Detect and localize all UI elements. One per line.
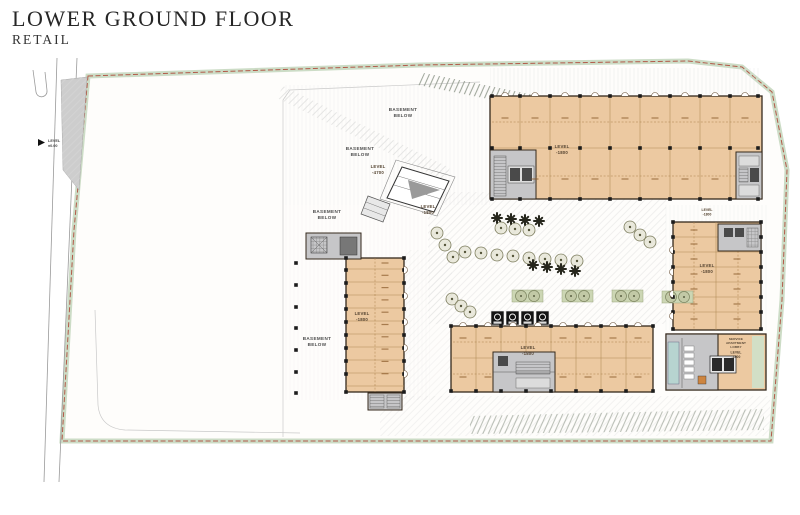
unit-tag-mark xyxy=(585,376,592,377)
column-marker xyxy=(344,268,348,272)
column-marker xyxy=(638,94,642,98)
column-marker xyxy=(294,305,298,309)
label-east-retail-level: -1800 xyxy=(701,269,713,274)
service-orange-room xyxy=(698,376,706,384)
unit-tag-mark xyxy=(712,117,719,118)
column-marker xyxy=(344,346,348,350)
stall xyxy=(684,374,694,379)
column-marker xyxy=(624,324,628,328)
column-marker xyxy=(344,390,348,394)
unit-tag-mark xyxy=(460,376,467,377)
column-marker xyxy=(490,197,494,201)
entry-arc xyxy=(712,93,719,96)
unit-tag-mark xyxy=(382,312,389,313)
column-marker xyxy=(474,324,478,328)
column-marker xyxy=(490,146,494,150)
column-marker xyxy=(518,197,522,201)
label-basement-below: BELOW xyxy=(308,342,327,347)
column-marker xyxy=(549,389,553,393)
column-marker xyxy=(728,197,732,201)
unit-tag-mark xyxy=(592,117,599,118)
column-marker xyxy=(294,391,298,395)
label-basement-below: BASEMENT xyxy=(303,336,332,341)
service-green-strip xyxy=(752,336,764,388)
unit-tag-mark xyxy=(734,303,741,304)
column-marker xyxy=(668,197,672,201)
north-core-east-stair xyxy=(739,168,748,182)
column-marker xyxy=(624,389,628,393)
tree-icon xyxy=(620,295,622,297)
column-marker xyxy=(668,146,672,150)
tree-icon xyxy=(444,244,446,246)
road-edge-left xyxy=(44,58,57,482)
unit-tag-mark xyxy=(382,299,389,300)
column-marker xyxy=(651,389,655,393)
label-basement-below: BELOW xyxy=(351,152,370,157)
column-marker xyxy=(671,220,675,224)
east-core-stair xyxy=(747,228,758,247)
column-marker xyxy=(499,324,503,328)
column-marker xyxy=(599,324,603,328)
shrub-icon xyxy=(528,260,538,270)
lift-icon xyxy=(524,322,532,324)
west-core-room xyxy=(340,237,357,255)
column-marker xyxy=(574,324,578,328)
label-service-lobby: LOBBY xyxy=(730,345,742,349)
unit-tag-mark xyxy=(592,178,599,179)
column-marker xyxy=(578,146,582,150)
unit-tag-mark xyxy=(691,288,698,289)
column-marker xyxy=(698,94,702,98)
column-marker xyxy=(756,146,760,150)
column-marker xyxy=(759,235,763,239)
tree-icon xyxy=(544,258,546,260)
shrub-icon xyxy=(534,216,544,226)
page-subtitle: RETAIL xyxy=(12,32,294,48)
column-marker xyxy=(671,280,675,284)
unit-tag-mark xyxy=(691,258,698,259)
stall xyxy=(684,360,694,365)
unit-tag-mark xyxy=(734,273,741,274)
label-level-4700: LEVEL xyxy=(371,164,386,169)
west-stair-run-2 xyxy=(387,395,400,408)
entry-arc xyxy=(560,323,567,327)
unit-tag-mark xyxy=(382,324,389,325)
column-marker xyxy=(449,324,453,328)
label-east-entry-level: LEVEL xyxy=(702,208,713,212)
tree-icon xyxy=(639,234,641,236)
column-marker xyxy=(759,280,763,284)
column-marker xyxy=(344,281,348,285)
tree-icon xyxy=(528,257,530,259)
unit-tag-mark xyxy=(635,337,642,338)
column-marker xyxy=(599,389,603,393)
tree-icon xyxy=(570,295,572,297)
column-marker xyxy=(518,94,522,98)
unit-tag-mark xyxy=(742,117,749,118)
entry-arc xyxy=(670,291,674,298)
service-stalls xyxy=(684,346,694,379)
unit-tag-mark xyxy=(382,361,389,362)
unit-tag-mark xyxy=(691,303,698,304)
unit-tag-mark xyxy=(382,349,389,350)
unit-tag-mark xyxy=(610,376,617,377)
service-lift-2 xyxy=(724,358,734,371)
label-basement-below: BASEMENT xyxy=(313,209,342,214)
label-basement-below: BASEMENT xyxy=(346,146,375,151)
north-core-east-room xyxy=(739,156,759,166)
unit-tag-mark xyxy=(652,178,659,179)
service-lift-1 xyxy=(712,358,722,371)
column-marker xyxy=(759,265,763,269)
shrub-icon xyxy=(506,214,516,224)
unit-tag-mark xyxy=(682,117,689,118)
column-marker xyxy=(490,94,494,98)
tree-icon xyxy=(683,296,685,298)
label-east-retail-level: LEVEL xyxy=(700,263,715,268)
entry-arc xyxy=(670,247,674,254)
column-marker xyxy=(344,320,348,324)
tree-icon xyxy=(460,305,462,307)
unit-tag-mark xyxy=(635,376,642,377)
tree-icon xyxy=(633,295,635,297)
column-marker xyxy=(759,310,763,314)
column-marker xyxy=(402,359,406,363)
south-core-room xyxy=(516,378,550,388)
tree-icon xyxy=(514,228,516,230)
unit-tag-mark xyxy=(485,337,492,338)
column-marker xyxy=(499,389,503,393)
shrub-icon xyxy=(570,266,580,276)
column-marker xyxy=(474,389,478,393)
unit-tag-mark xyxy=(585,337,592,338)
column-marker xyxy=(294,348,298,352)
column-marker xyxy=(578,197,582,201)
column-marker xyxy=(402,333,406,337)
lift-icon xyxy=(494,322,502,324)
stall xyxy=(684,353,694,358)
unit-tag-mark xyxy=(560,376,567,377)
label-road-level: LEVEL xyxy=(48,139,61,143)
stall xyxy=(684,367,694,372)
column-marker xyxy=(671,327,675,331)
entry-arc xyxy=(532,93,539,96)
label-north-retail-level: LEVEL xyxy=(555,144,570,149)
tree-icon xyxy=(583,295,585,297)
label-basement-below: BELOW xyxy=(318,215,337,220)
tree-icon xyxy=(464,251,466,253)
column-marker xyxy=(402,390,406,394)
unit-tag-mark xyxy=(382,275,389,276)
column-marker xyxy=(608,197,612,201)
unit-tag-mark xyxy=(622,178,629,179)
unit-tag-mark xyxy=(460,337,467,338)
north-core-west-stair xyxy=(494,156,506,196)
service-water-room xyxy=(668,342,679,384)
building-east-retail xyxy=(673,222,761,330)
tree-icon xyxy=(528,229,530,231)
label-level-4700: -4700 xyxy=(372,170,384,175)
unit-tag-mark xyxy=(712,178,719,179)
label-basement-below: BASEMENT xyxy=(389,107,418,112)
column-marker xyxy=(402,256,406,260)
column-marker xyxy=(728,146,732,150)
label-south-retail-level: LEVEL xyxy=(521,345,536,350)
label-north-retail-level: -1800 xyxy=(556,150,568,155)
tree-icon xyxy=(629,226,631,228)
parking-hatch-mid xyxy=(404,250,452,400)
unit-tag-mark xyxy=(734,318,741,319)
unit-tag-mark xyxy=(622,117,629,118)
label-service-level: LEVEL xyxy=(731,351,742,355)
tree-icon xyxy=(560,259,562,261)
column-marker xyxy=(344,294,348,298)
column-marker xyxy=(608,146,612,150)
column-marker xyxy=(759,295,763,299)
column-marker xyxy=(344,256,348,260)
column-marker xyxy=(671,235,675,239)
column-marker xyxy=(759,327,763,331)
column-marker xyxy=(728,94,732,98)
unit-tag-mark xyxy=(502,117,509,118)
west-stair-run-1 xyxy=(370,395,384,408)
road-turnout-curve xyxy=(33,70,47,97)
entry-arc xyxy=(635,323,642,327)
column-marker xyxy=(638,197,642,201)
unit-tag-mark xyxy=(382,336,389,337)
unit-tag-mark xyxy=(562,178,569,179)
north-core-east-lift xyxy=(750,168,759,182)
label-ramp-level: -1800 xyxy=(422,210,434,215)
tree-icon xyxy=(500,227,502,229)
unit-tag-mark xyxy=(691,243,698,244)
building-north-retail xyxy=(490,96,762,199)
label-east-entry-level: -1800 xyxy=(703,213,712,217)
column-marker xyxy=(578,94,582,98)
unit-tag-mark xyxy=(382,262,389,263)
unit-tag-mark xyxy=(560,337,567,338)
south-core-lift xyxy=(498,356,508,366)
north-core-east-room2 xyxy=(739,185,759,196)
column-marker xyxy=(574,389,578,393)
tree-icon xyxy=(576,260,578,262)
tree-icon xyxy=(451,298,453,300)
entry-arc xyxy=(404,267,408,274)
building-service-block xyxy=(666,334,766,390)
east-core-lift-1 xyxy=(724,228,733,237)
entry-arc xyxy=(404,345,408,352)
column-marker xyxy=(668,94,672,98)
label-west-retail-level: LEVEL xyxy=(355,311,370,316)
column-marker xyxy=(548,94,552,98)
column-marker xyxy=(449,389,453,393)
tree-icon xyxy=(469,311,471,313)
column-marker xyxy=(402,307,406,311)
column-marker xyxy=(344,359,348,363)
label-west-retail-level: -1800 xyxy=(356,317,368,322)
column-marker xyxy=(756,94,760,98)
unit-tag-mark xyxy=(610,337,617,338)
north-core-west-lift-1 xyxy=(510,168,520,181)
page-title: LOWER GROUND FLOOR xyxy=(12,6,294,32)
entry-arc xyxy=(682,93,689,96)
entry-arc xyxy=(535,323,542,327)
unit-tag-mark xyxy=(652,117,659,118)
unit-tag-mark xyxy=(382,287,389,288)
site-plan-drawing: BASEMENT BELOW BASEMENT BELOW BASEMENT B… xyxy=(0,0,800,515)
stall xyxy=(684,346,694,351)
building-south-retail xyxy=(451,326,653,392)
label-south-retail-level: -1800 xyxy=(522,351,534,356)
column-marker xyxy=(651,324,655,328)
column-marker xyxy=(402,281,406,285)
column-marker xyxy=(759,250,763,254)
entry-arc xyxy=(742,93,749,96)
label-service-level: -1800 xyxy=(732,355,741,359)
column-marker xyxy=(344,372,348,376)
unit-tag-mark xyxy=(734,288,741,289)
unit-tag-mark xyxy=(691,273,698,274)
column-marker xyxy=(548,146,552,150)
column-marker xyxy=(608,94,612,98)
label-basement-below: BELOW xyxy=(394,113,413,118)
unit-tag-mark xyxy=(682,178,689,179)
column-marker xyxy=(756,197,760,201)
column-marker xyxy=(638,146,642,150)
entry-arc xyxy=(670,269,674,276)
parking-hatch-top xyxy=(285,85,490,205)
tree-icon xyxy=(452,256,454,258)
unit-tag-mark xyxy=(382,373,389,374)
column-marker xyxy=(524,324,528,328)
unit-tag-mark xyxy=(532,178,539,179)
label-road-level: ±0.00 xyxy=(48,144,57,148)
column-marker xyxy=(344,307,348,311)
column-marker xyxy=(698,197,702,201)
west-retail-outline xyxy=(346,258,404,392)
column-marker xyxy=(294,261,298,265)
road-level-arrow-icon xyxy=(38,139,45,146)
column-marker xyxy=(518,146,522,150)
title-block: LOWER GROUND FLOOR RETAIL xyxy=(12,6,294,48)
entry-arc xyxy=(404,371,408,378)
unit-tag-mark xyxy=(691,229,698,230)
entry-arc xyxy=(585,323,592,327)
unit-tag-mark xyxy=(485,376,492,377)
shrub-icon xyxy=(556,264,566,274)
entry-arc xyxy=(592,93,599,96)
column-marker xyxy=(294,283,298,287)
tree-icon xyxy=(436,232,438,234)
column-marker xyxy=(698,146,702,150)
column-marker xyxy=(548,197,552,201)
unit-tag-mark xyxy=(734,258,741,259)
unit-tag-mark xyxy=(532,117,539,118)
label-ramp-level: LEVEL xyxy=(421,204,436,209)
unit-tag-mark xyxy=(562,117,569,118)
shrub-icon xyxy=(542,262,552,272)
floor-plan-sheet: LOWER GROUND FLOOR RETAIL xyxy=(0,0,800,515)
tree-icon xyxy=(512,255,514,257)
column-marker xyxy=(294,370,298,374)
tree-icon xyxy=(496,254,498,256)
column-marker xyxy=(549,324,553,328)
tree-icon xyxy=(649,241,651,243)
entry-arc xyxy=(485,323,492,327)
shrub-icon xyxy=(492,213,502,223)
tree-icon xyxy=(480,252,482,254)
entry-arc xyxy=(562,93,569,96)
tree-icon xyxy=(520,295,522,297)
column-marker xyxy=(759,220,763,224)
parking-hatch-north xyxy=(490,68,760,94)
shrub-icon xyxy=(520,215,530,225)
column-marker xyxy=(344,333,348,337)
unit-tag-mark xyxy=(691,318,698,319)
tree-icon xyxy=(533,295,535,297)
east-core-lift-2 xyxy=(735,228,744,237)
column-marker xyxy=(294,326,298,330)
column-marker xyxy=(524,389,528,393)
north-core-west-lift-2 xyxy=(522,168,532,181)
